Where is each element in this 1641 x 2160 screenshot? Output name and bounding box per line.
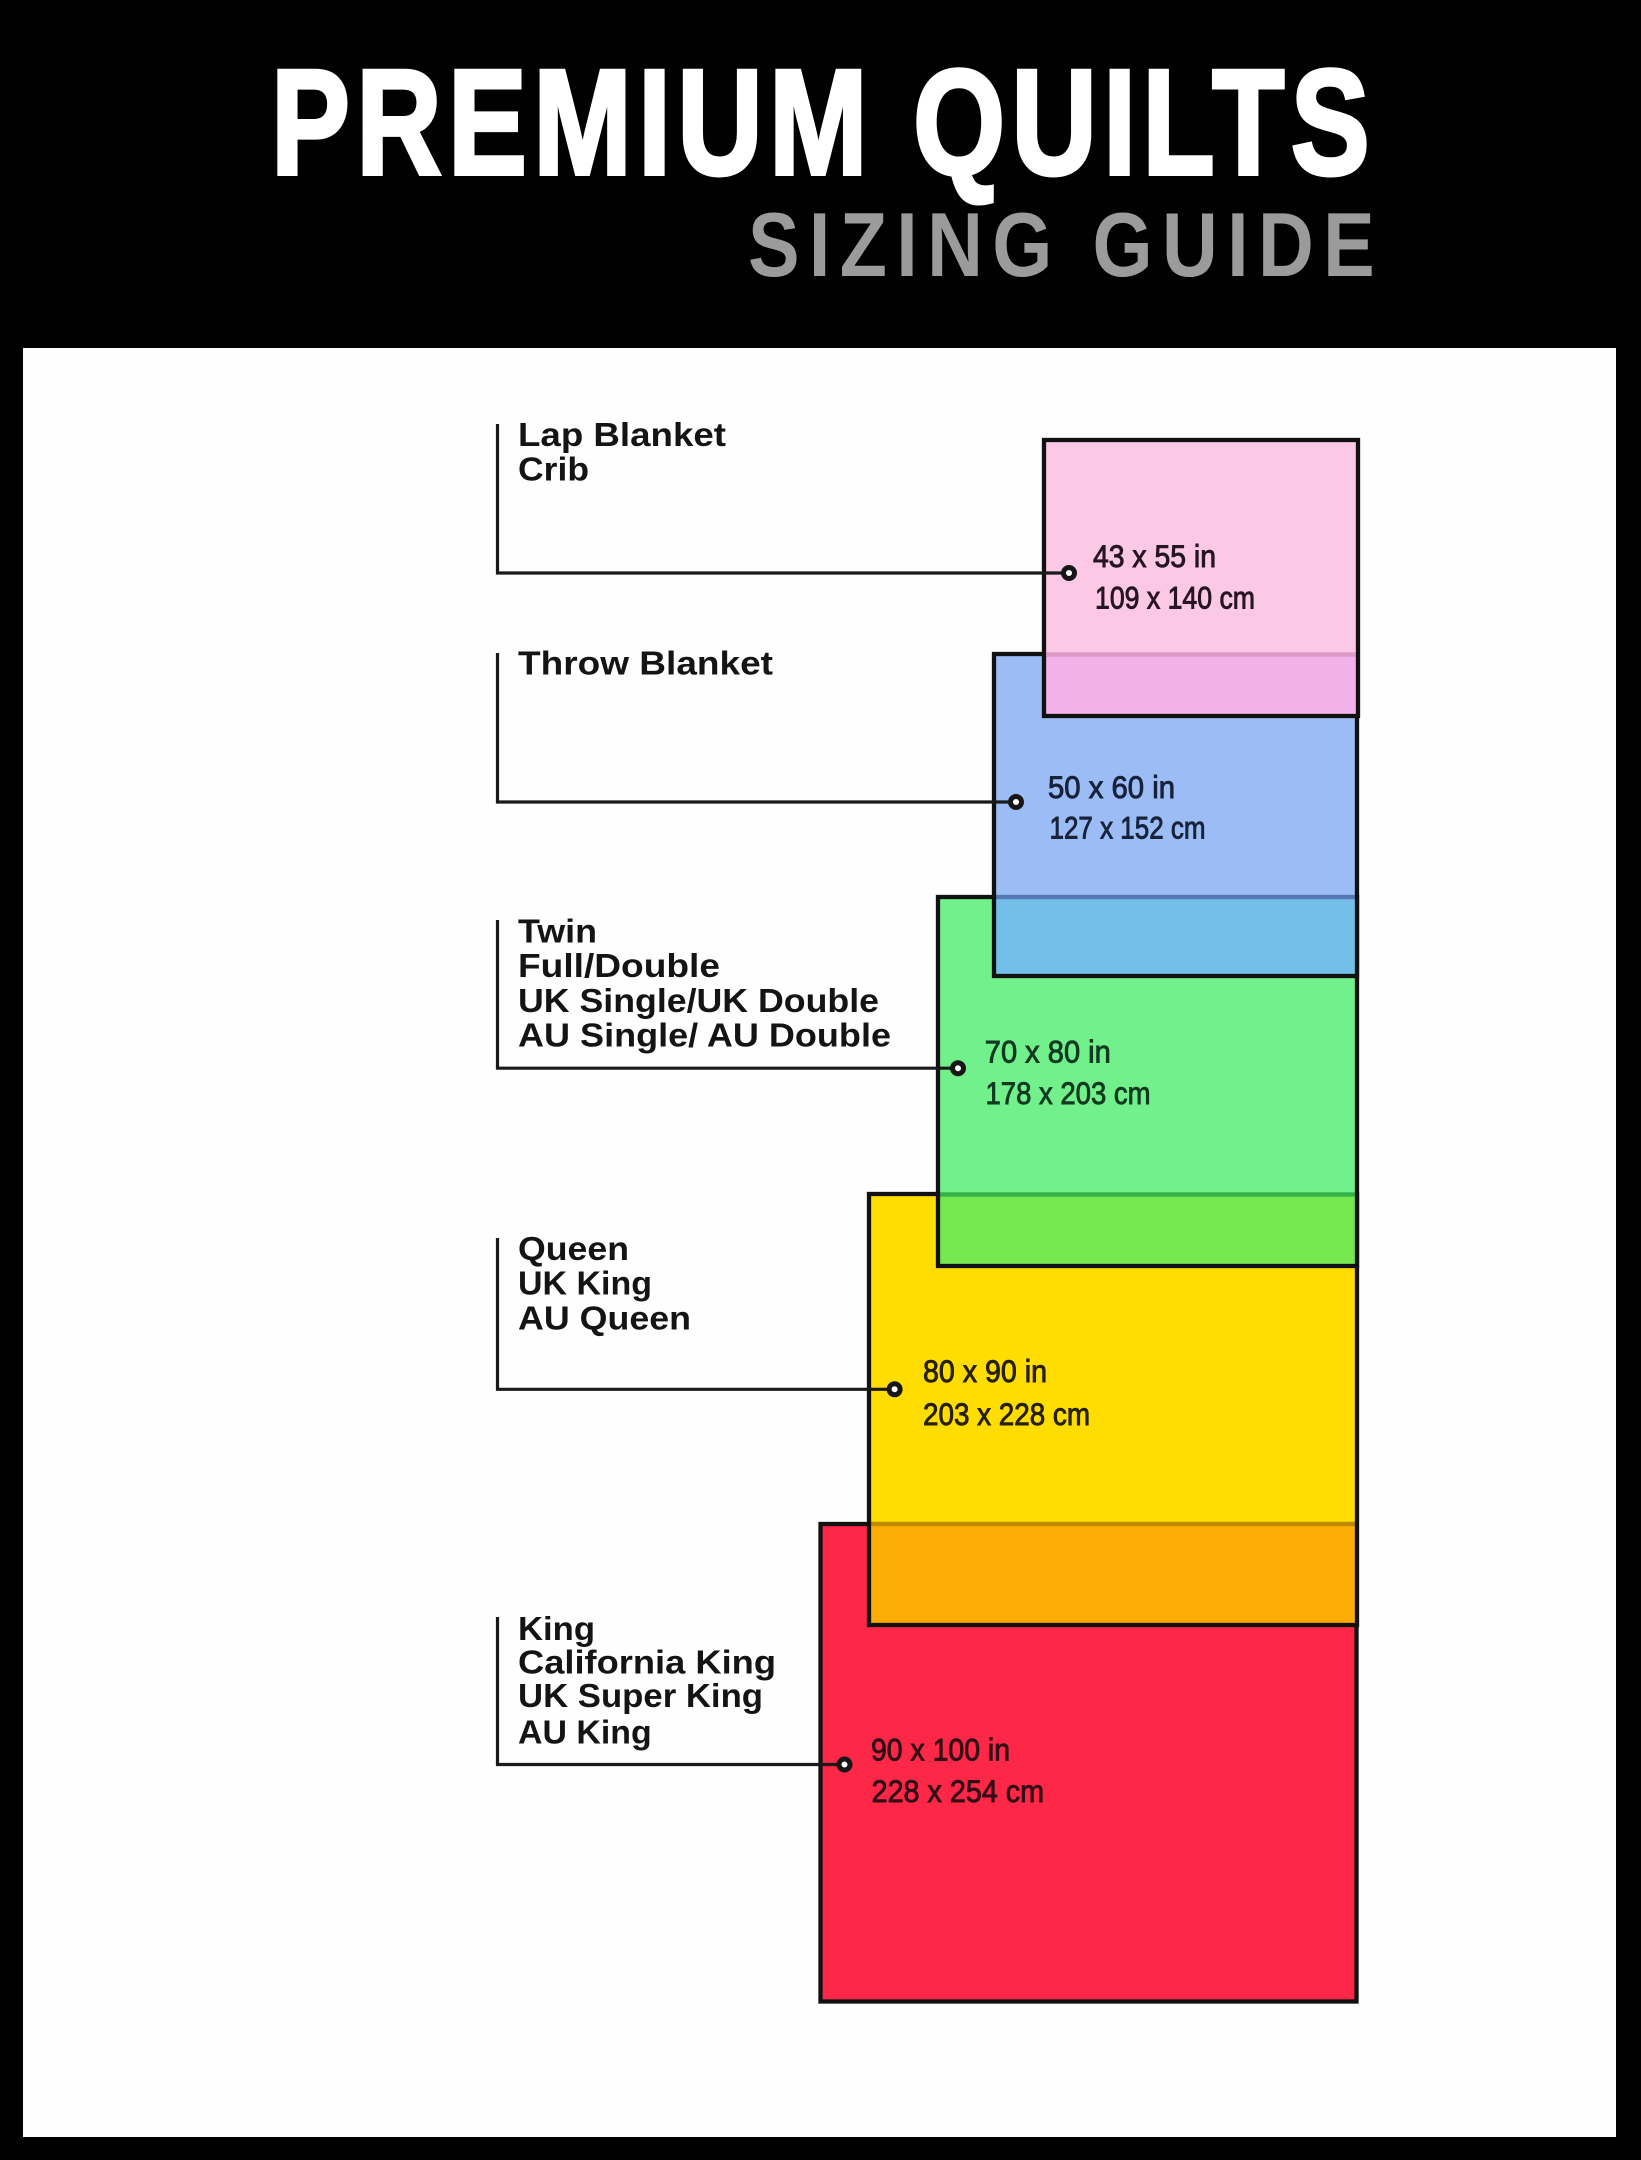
svg-text:109 x 140 cm: 109 x 140 cm [1095,580,1255,616]
svg-text:UK King: UK King [518,1265,652,1302]
svg-text:California King: California King [518,1644,776,1681]
svg-text:AU King: AU King [518,1713,652,1750]
svg-text:203 x 228 cm: 203 x 228 cm [923,1396,1090,1432]
svg-text:80 x 90 in: 80 x 90 in [923,1353,1047,1389]
svg-text:SIZING GUIDE: SIZING GUIDE [748,195,1384,296]
svg-text:UK Super King: UK Super King [518,1677,763,1714]
svg-text:King: King [518,1610,595,1647]
svg-text:Throw Blanket: Throw Blanket [518,645,773,682]
svg-text:Lap Blanket: Lap Blanket [518,416,726,453]
svg-text:43 x 55 in: 43 x 55 in [1093,538,1216,574]
svg-text:178 x 203 cm: 178 x 203 cm [986,1075,1151,1111]
svg-text:228 x 254 cm: 228 x 254 cm [872,1773,1045,1809]
svg-text:70 x 80 in: 70 x 80 in [985,1034,1111,1070]
svg-text:50 x 60 in: 50 x 60 in [1048,769,1175,805]
svg-text:127 x 152 cm: 127 x 152 cm [1050,810,1206,846]
svg-text:Full/Double: Full/Double [518,947,720,984]
svg-text:Crib: Crib [518,451,589,488]
svg-text:AU Queen: AU Queen [518,1299,691,1336]
svg-text:Queen: Queen [518,1230,629,1267]
svg-text:Twin: Twin [518,912,597,949]
svg-text:AU Single/ AU Double: AU Single/ AU Double [518,1017,891,1054]
svg-text:UK Single/UK Double: UK Single/UK Double [518,982,879,1019]
svg-text:PREMIUM QUILTS: PREMIUM QUILTS [271,38,1376,206]
svg-text:90 x 100 in: 90 x 100 in [871,1731,1010,1767]
